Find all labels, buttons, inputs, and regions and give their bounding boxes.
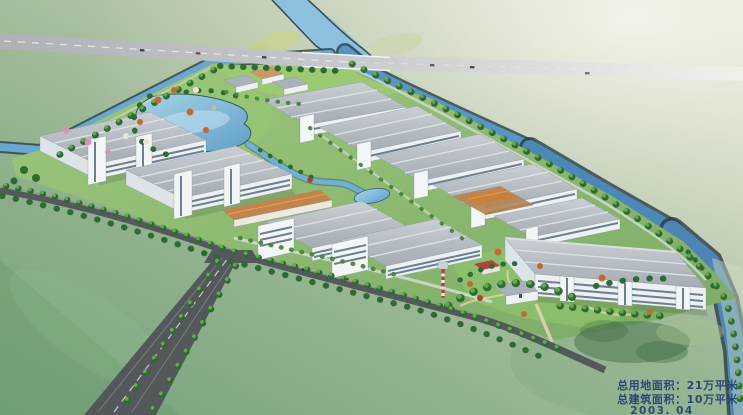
tower-tank (438, 262, 448, 269)
built-area-label: 总建筑面积：10万平米 (617, 392, 738, 406)
office-tower (174, 170, 192, 219)
land-area-label: 总用地面积：21万平米 (617, 378, 738, 392)
lake-islet (212, 106, 217, 111)
aerial-rendering-industrial-park: 总用地面积：21万平米 总建筑面积：10万平米 2003. 04 (0, 0, 743, 415)
site-plan-rendering: 总用地面积：21万平米 总建筑面积：10万平米 2003. 04 (0, 0, 743, 415)
gatehouse-door (519, 294, 522, 298)
date-label: 2003. 04 (630, 405, 693, 415)
